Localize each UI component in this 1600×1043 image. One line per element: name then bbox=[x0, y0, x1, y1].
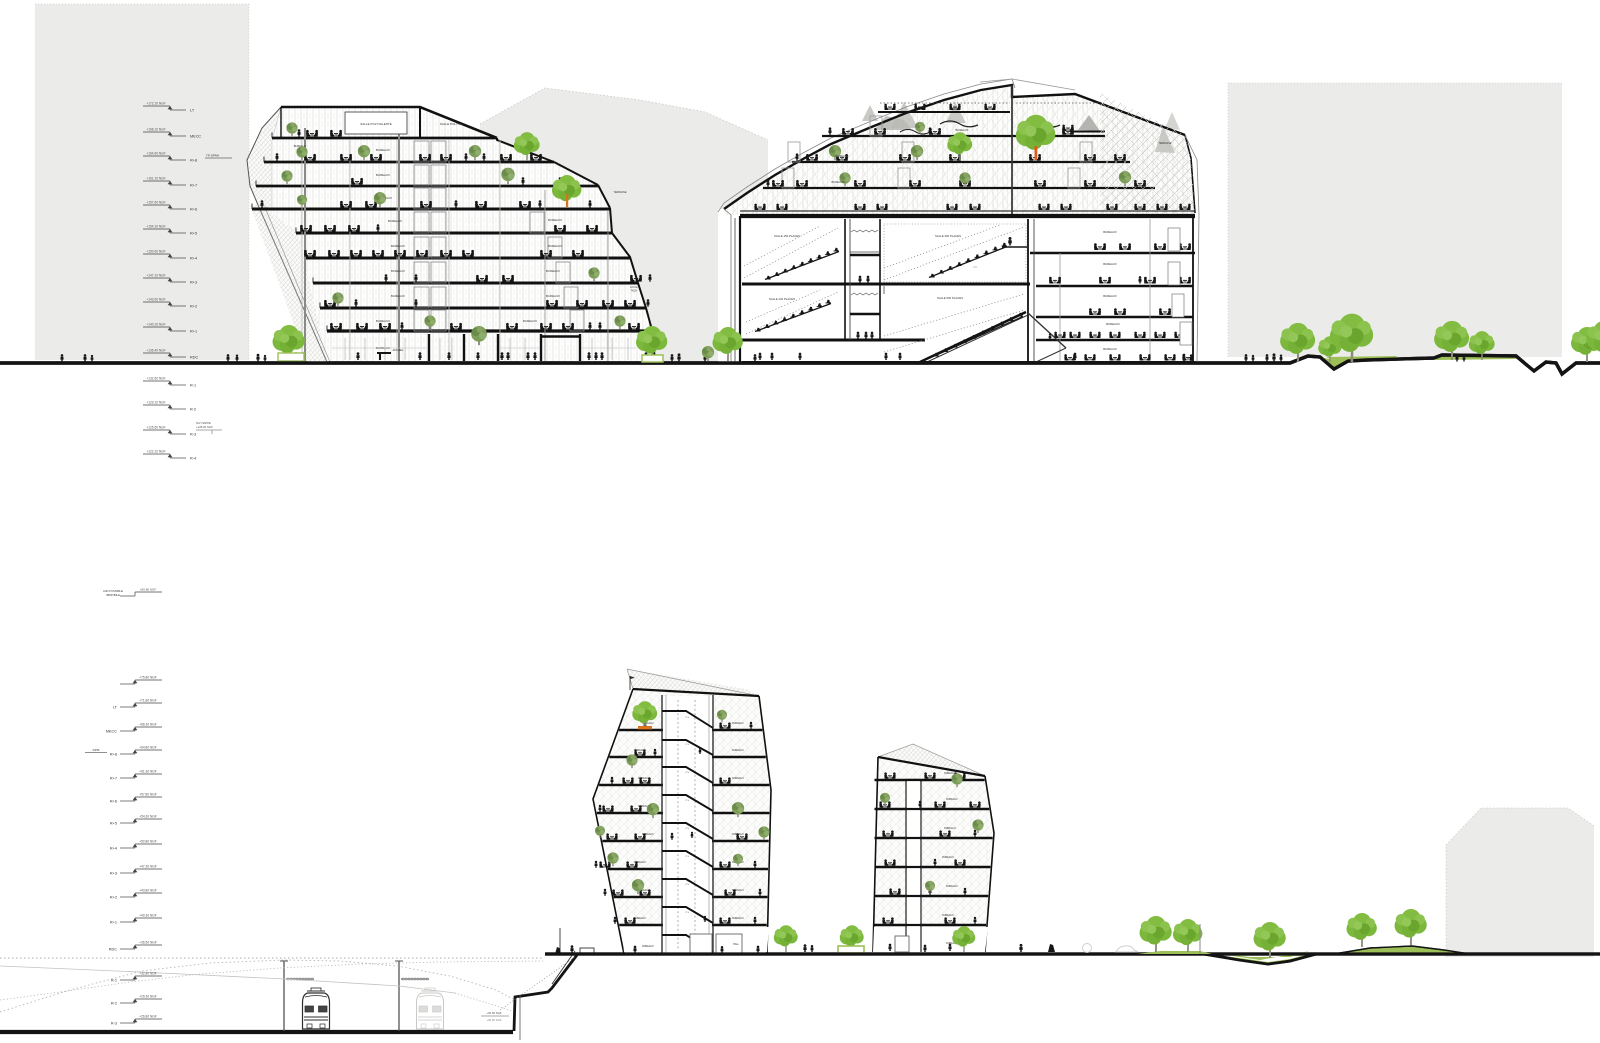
svg-text:BUREAUX: BUREAUX bbox=[1103, 262, 1117, 266]
svg-text:BUREAUX: BUREAUX bbox=[546, 269, 560, 273]
svg-text:+68.30 NGF: +68.30 NGF bbox=[139, 723, 157, 727]
svg-text:17 M: 17 M bbox=[685, 912, 690, 914]
svg-text:BUREAUX: BUREAUX bbox=[546, 294, 560, 298]
svg-text:R+4: R+4 bbox=[110, 847, 117, 851]
svg-text:DPM: DPM bbox=[93, 748, 100, 752]
svg-text:R-2: R-2 bbox=[190, 408, 196, 412]
svg-text:17 M: 17 M bbox=[685, 800, 690, 802]
svg-text:+32.80 NGF: +32.80 NGF bbox=[139, 972, 157, 976]
svg-text:+54.30 NGF: +54.30 NGF bbox=[139, 815, 157, 819]
svg-text:17 M: 17 M bbox=[685, 772, 690, 774]
svg-text:R+5: R+5 bbox=[190, 232, 197, 236]
svg-text:+168.10 NGF: +168.10 NGF bbox=[146, 128, 165, 132]
svg-text:+71.80 NGF: +71.80 NGF bbox=[139, 699, 157, 703]
svg-text:BUREAUX: BUREAUX bbox=[391, 294, 405, 298]
svg-text:ACCUEIL: ACCUEIL bbox=[393, 349, 404, 352]
svg-text:R+2: R+2 bbox=[190, 305, 197, 309]
svg-text:+30.50 NGF: +30.50 NGF bbox=[486, 1011, 502, 1015]
svg-text:TP SPRH: TP SPRH bbox=[206, 154, 219, 158]
svg-text:BUREAUX: BUREAUX bbox=[944, 827, 956, 830]
svg-text:BUREAUX: BUREAUX bbox=[732, 777, 744, 780]
svg-text:+40.30 NGF: +40.30 NGF bbox=[139, 914, 157, 918]
svg-text:BUREAUX: BUREAUX bbox=[732, 749, 744, 752]
svg-text:BUREAUX: BUREAUX bbox=[832, 180, 845, 184]
svg-text:R+7: R+7 bbox=[110, 777, 117, 781]
svg-text:R+1: R+1 bbox=[110, 921, 117, 925]
svg-text:17 M: 17 M bbox=[685, 856, 690, 858]
svg-text:BUREAUX: BUREAUX bbox=[946, 798, 958, 801]
svg-text:+129.10 NGF: +129.10 NGF bbox=[146, 401, 165, 405]
svg-text:BUREAUX: BUREAUX bbox=[732, 917, 744, 920]
svg-text:BUREAUX: BUREAUX bbox=[1103, 294, 1117, 298]
svg-text:17 M: 17 M bbox=[685, 884, 690, 886]
svg-text:+75.80 NGF: +75.80 NGF bbox=[139, 676, 157, 680]
svg-text:SALLE 500 PLACES: SALLE 500 PLACES bbox=[937, 296, 963, 300]
svg-text:BUREAUX: BUREAUX bbox=[836, 154, 849, 158]
svg-text:BUREAUX: BUREAUX bbox=[1103, 230, 1117, 234]
svg-text:+47.30 NGF: +47.30 NGF bbox=[139, 865, 157, 869]
svg-text:+147.10 NGF: +147.10 NGF bbox=[146, 274, 165, 278]
svg-text:R+8: R+8 bbox=[110, 753, 117, 757]
svg-text:R-1: R-1 bbox=[190, 384, 196, 388]
svg-text:BUREAUX: BUREAUX bbox=[1106, 322, 1120, 326]
svg-text:17 M: 17 M bbox=[685, 828, 690, 830]
svg-text:+57.80 NGF: +57.80 NGF bbox=[139, 793, 157, 797]
svg-text:SALLE 150 PLACES: SALLE 150 PLACES bbox=[774, 234, 800, 238]
svg-text:+36.50 NGF: +36.50 NGF bbox=[139, 941, 157, 945]
svg-text:R+6: R+6 bbox=[110, 800, 117, 804]
svg-text:RDC: RDC bbox=[109, 948, 117, 952]
svg-text:+28.90 NGF: +28.90 NGF bbox=[486, 1018, 502, 1022]
svg-text:R-3: R-3 bbox=[111, 1022, 117, 1026]
svg-text:MECC: MECC bbox=[190, 135, 201, 139]
svg-text:R+7: R+7 bbox=[190, 184, 197, 188]
svg-text:BUREAUX: BUREAUX bbox=[548, 218, 562, 222]
svg-text:R+2: R+2 bbox=[110, 896, 117, 900]
svg-text:LT: LT bbox=[190, 109, 195, 113]
svg-text:+125.60 NGF: +125.60 NGF bbox=[146, 426, 165, 430]
svg-text:BUREAUX: BUREAUX bbox=[1103, 347, 1117, 351]
svg-text:TECH: TECH bbox=[631, 290, 638, 293]
svg-text:RDC: RDC bbox=[190, 356, 198, 360]
svg-text:+161.10 NGF: +161.10 NGF bbox=[146, 177, 165, 181]
svg-text:+43.80 NGF: +43.80 NGF bbox=[139, 889, 157, 893]
svg-text:BUREAUX: BUREAUX bbox=[376, 173, 390, 177]
svg-text:+26.80 NGF: +26.80 NGF bbox=[139, 1015, 157, 1019]
svg-text:SALLE POLYVAL.: SALLE POLYVAL. bbox=[440, 122, 464, 126]
svg-text:+61.30 NGF: +61.30 NGF bbox=[139, 770, 157, 774]
svg-text:LT: LT bbox=[113, 706, 118, 710]
svg-text:BUREAUX: BUREAUX bbox=[523, 319, 537, 323]
svg-text:+80.80 NGF: +80.80 NGF bbox=[140, 588, 157, 592]
svg-text:R-3: R-3 bbox=[190, 433, 196, 437]
svg-text:SALLE 300 PLACES: SALLE 300 PLACES bbox=[935, 234, 961, 238]
svg-text:R-1: R-1 bbox=[111, 979, 117, 983]
svg-text:C3: C3 bbox=[973, 265, 977, 269]
svg-text:R+8: R+8 bbox=[190, 159, 197, 163]
svg-text:R+6: R+6 bbox=[190, 208, 197, 212]
svg-text:BUREAUX: BUREAUX bbox=[376, 319, 390, 323]
svg-text:+154.10 NGF: +154.10 NGF bbox=[146, 225, 165, 229]
svg-text:SALLE POLYVALENTE: SALLE POLYVALENTE bbox=[360, 122, 391, 126]
svg-text:R+5: R+5 bbox=[110, 822, 117, 826]
svg-text:R-2: R-2 bbox=[111, 1002, 117, 1006]
svg-text:BUREAUX: BUREAUX bbox=[376, 148, 390, 152]
svg-text:+50.80 NGF: +50.80 NGF bbox=[139, 840, 157, 844]
svg-text:+122.10 NGF: +122.10 NGF bbox=[146, 450, 165, 454]
svg-text:R+4: R+4 bbox=[190, 257, 197, 261]
svg-text:R-4: R-4 bbox=[190, 457, 196, 461]
svg-text:TERRASSE: TERRASSE bbox=[614, 191, 627, 194]
svg-text:HALL: HALL bbox=[733, 943, 740, 946]
svg-text:BUREAUX: BUREAUX bbox=[391, 244, 405, 248]
svg-text:MECC: MECC bbox=[106, 730, 117, 734]
svg-text:BUREAUX: BUREAUX bbox=[642, 945, 654, 948]
svg-text:SALLE 130 PLACES: SALLE 130 PLACES bbox=[769, 297, 795, 301]
svg-text:17 M: 17 M bbox=[685, 717, 690, 719]
svg-text:R+3: R+3 bbox=[110, 872, 117, 876]
svg-text:BUREAUX: BUREAUX bbox=[634, 917, 646, 920]
svg-text:+172.10 NGF: +172.10 NGF bbox=[146, 102, 165, 106]
svg-text:+136.40 NGF: +136.40 NGF bbox=[146, 349, 165, 353]
svg-text:BUREAUX: BUREAUX bbox=[548, 244, 562, 248]
svg-text:BUREAUX: BUREAUX bbox=[942, 914, 954, 917]
svg-text:+132.60 NGF: +132.60 NGF bbox=[146, 377, 165, 381]
svg-text:BUREAUX: BUREAUX bbox=[391, 269, 405, 273]
svg-text:+64.80 NGF: +64.80 NGF bbox=[139, 746, 157, 750]
svg-text:BUREAUX: BUREAUX bbox=[732, 722, 744, 725]
svg-text:R+3: R+3 bbox=[190, 281, 197, 285]
svg-text:+143.60 NGF: +143.60 NGF bbox=[146, 298, 165, 302]
svg-text:IMMOBILE: IMMOBILE bbox=[106, 593, 120, 597]
svg-text:BUREAUX: BUREAUX bbox=[956, 128, 969, 132]
svg-text:TERRASSE: TERRASSE bbox=[1159, 142, 1172, 145]
svg-text:+164.60 NGF: +164.60 NGF bbox=[146, 152, 165, 156]
svg-text:+29.30 NGF: +29.30 NGF bbox=[139, 995, 157, 999]
svg-text:R+1: R+1 bbox=[190, 330, 197, 334]
svg-text:17 M: 17 M bbox=[685, 744, 690, 746]
svg-text:+140.10 NGF: +140.10 NGF bbox=[146, 323, 165, 327]
svg-text:+150.60 NGF: +150.60 NGF bbox=[146, 250, 165, 254]
svg-text:+157.60 NGF: +157.60 NGF bbox=[146, 201, 165, 205]
svg-text:BUREAUX: BUREAUX bbox=[388, 219, 402, 223]
svg-text:BUREAUX: BUREAUX bbox=[946, 885, 958, 888]
svg-text:BUREAUX: BUREAUX bbox=[942, 856, 954, 859]
svg-text:+128.20 NGF: +128.20 NGF bbox=[196, 425, 213, 429]
